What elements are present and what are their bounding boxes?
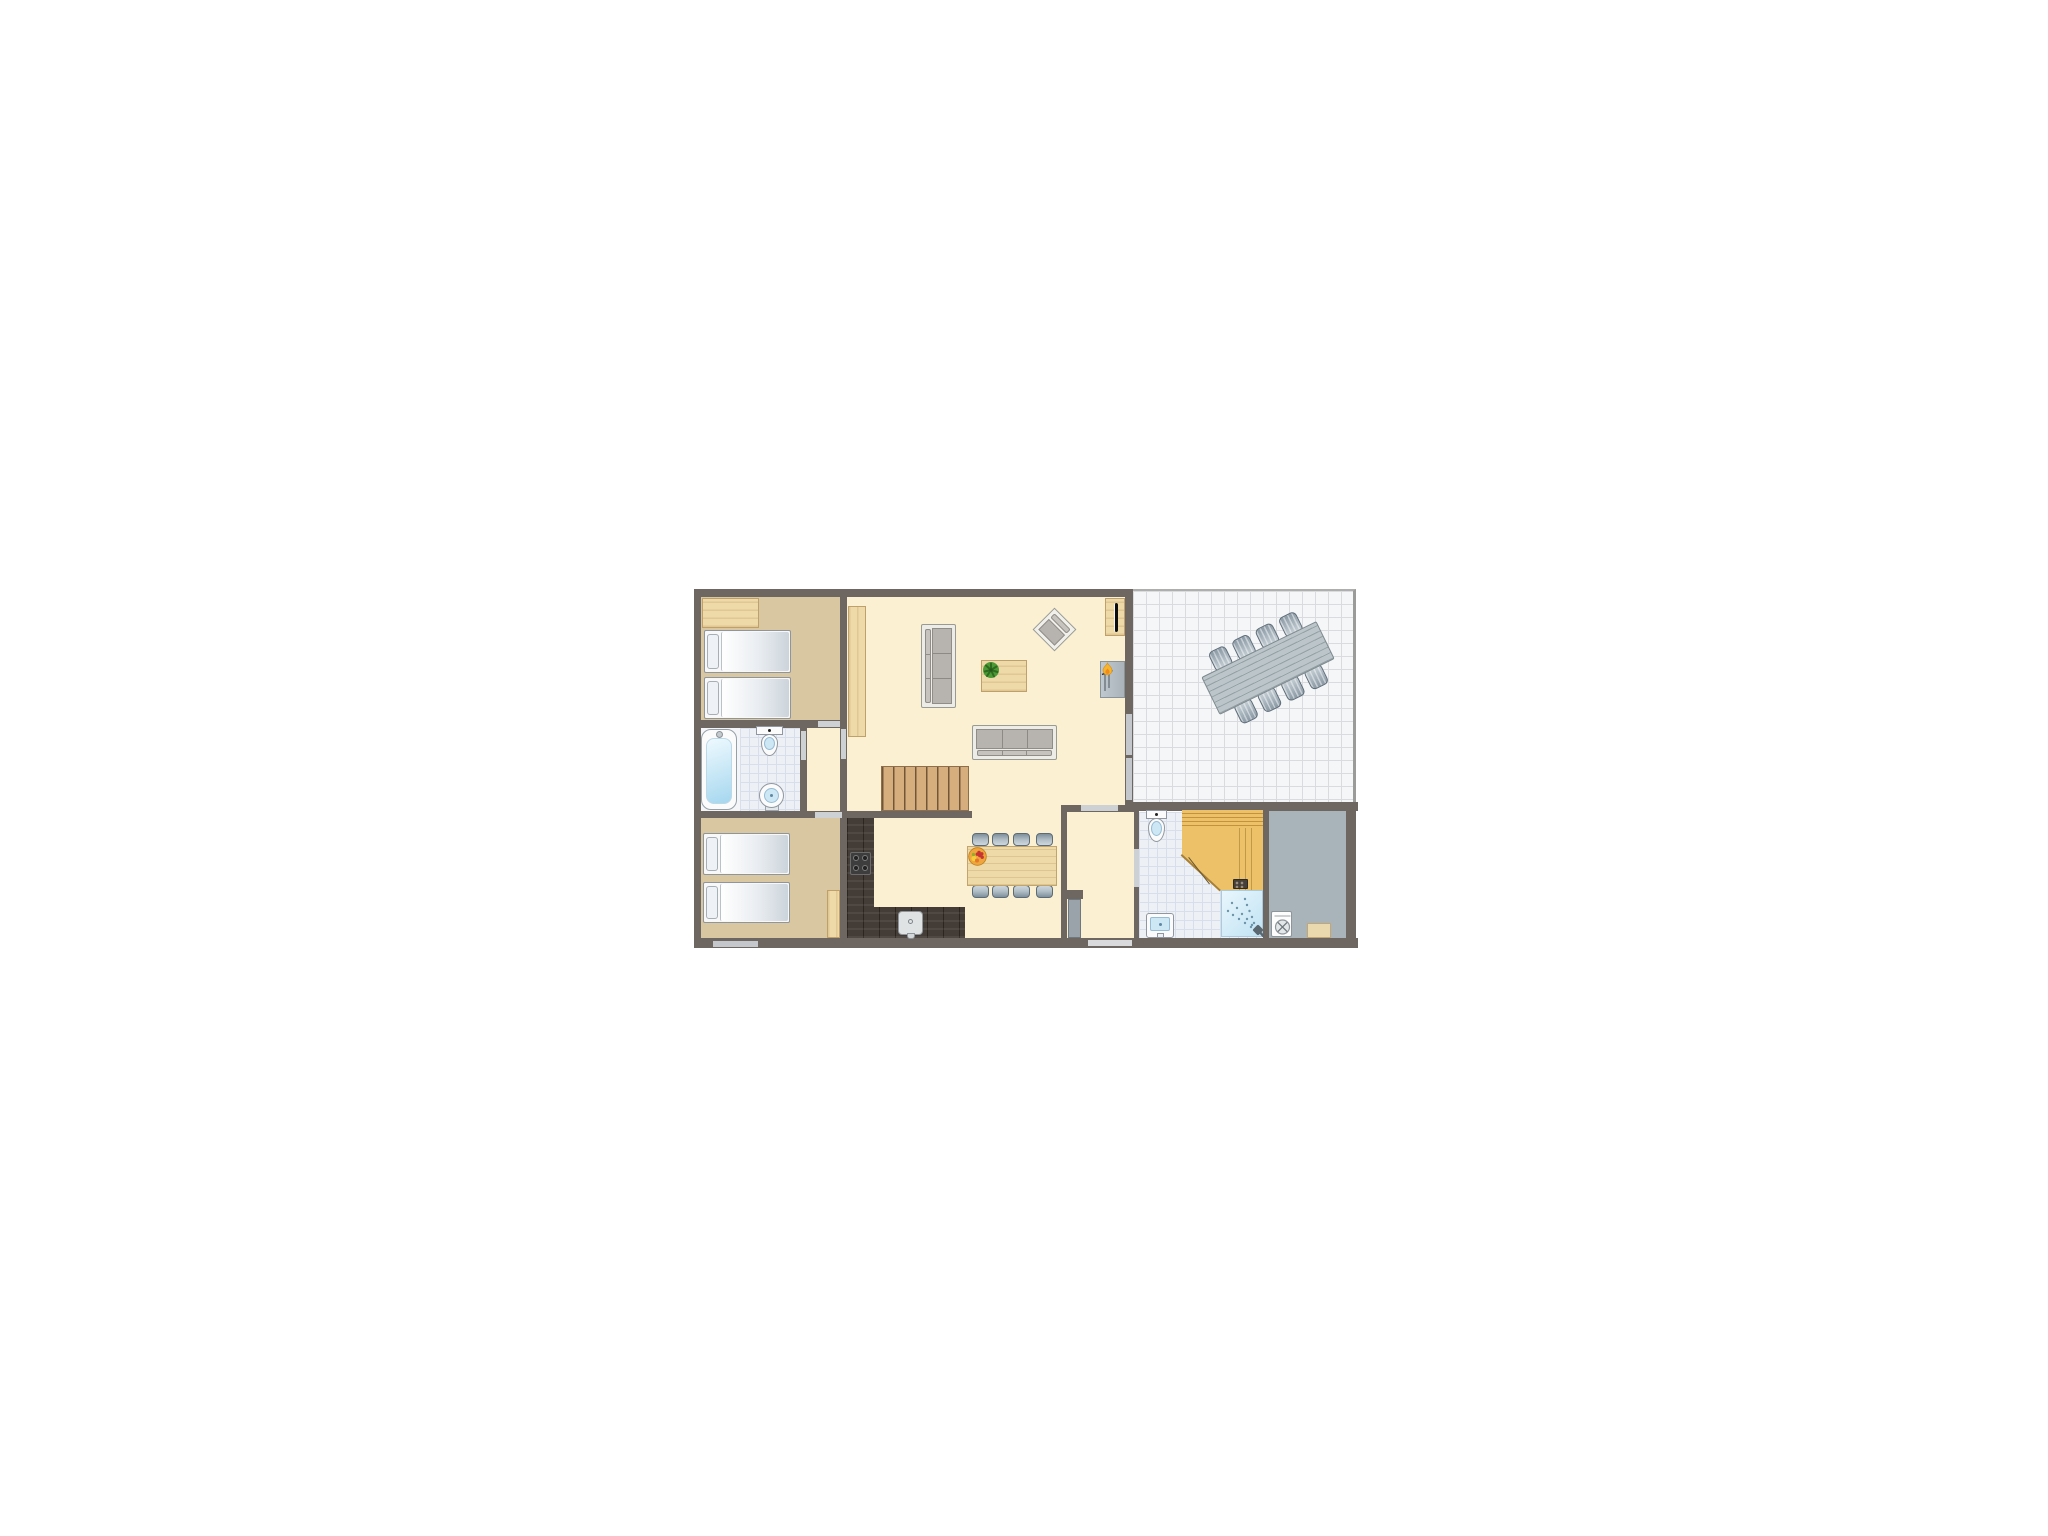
window-living-terrace-1 xyxy=(1126,714,1132,755)
tv-cabinet xyxy=(1105,598,1125,636)
cooktop-burner xyxy=(853,865,859,871)
bed-3 xyxy=(703,833,790,875)
washing-machine-drum-icon xyxy=(1272,912,1293,943)
dining-chair xyxy=(972,833,989,846)
sauna-bench xyxy=(1182,817,1263,818)
floor-plan xyxy=(512,384,1536,1152)
sofa-backrest-divider xyxy=(1026,751,1027,755)
sauna-slat xyxy=(1251,828,1252,890)
wall xyxy=(840,818,847,938)
shower-spray-icon xyxy=(1221,890,1264,942)
washbasin-bowl xyxy=(759,783,784,808)
sofa-cushion-divider xyxy=(933,678,951,679)
bed-duvet xyxy=(720,835,788,873)
wall xyxy=(694,589,701,948)
sofa-backrest-divider xyxy=(1002,751,1003,755)
wall xyxy=(847,811,972,818)
door-bedroom-2 xyxy=(815,812,842,818)
sofa-cushion-divider xyxy=(933,653,951,654)
sofa-backrest xyxy=(977,750,1052,756)
dining-chair xyxy=(992,833,1009,846)
bed-duvet xyxy=(721,632,789,671)
fruit-bowl-icon xyxy=(968,847,987,871)
bed-duvet xyxy=(720,884,788,921)
wall xyxy=(840,589,847,728)
toilet-1 xyxy=(756,726,783,760)
sofa-cushions xyxy=(976,729,1053,749)
toilet-bowl xyxy=(761,734,778,756)
dining-chair xyxy=(972,885,989,898)
sauna-cabin xyxy=(1182,810,1263,890)
interior-door-leaf xyxy=(1068,899,1081,938)
dining-chair xyxy=(1013,885,1030,898)
dining-set xyxy=(960,833,1064,899)
sauna-bench xyxy=(1182,825,1263,826)
washing-machine xyxy=(1271,911,1292,937)
stairs xyxy=(881,766,969,811)
window-living-terrace-2 xyxy=(1126,758,1132,800)
door-bathroom-2 xyxy=(1134,849,1139,887)
dining-table xyxy=(967,846,1057,886)
cooktop-burner xyxy=(862,865,868,871)
dining-chair xyxy=(1036,833,1053,846)
plant-icon xyxy=(982,661,1000,684)
bathtub xyxy=(701,729,737,810)
door-bedroom-1 xyxy=(818,721,840,727)
kitchen-sink xyxy=(898,911,923,935)
dining-chair xyxy=(1013,833,1030,846)
shower xyxy=(1221,890,1263,937)
bed-pillow xyxy=(707,634,719,669)
bed-pillow xyxy=(706,837,718,871)
sofa-backrest-divider xyxy=(926,654,930,655)
toilet-seat xyxy=(1151,821,1162,836)
sauna-bench xyxy=(1182,821,1263,822)
bed-pillow xyxy=(707,681,719,715)
bathtub-water xyxy=(706,738,732,804)
flame-icon xyxy=(1101,662,1114,682)
toilet-bowl xyxy=(1148,818,1165,842)
wall xyxy=(694,589,1133,597)
wardrobe xyxy=(702,598,759,628)
wall xyxy=(1061,890,1083,899)
washbasin-drain xyxy=(1159,923,1162,926)
bed-1 xyxy=(704,630,791,673)
door-hall-living xyxy=(841,729,846,759)
wall xyxy=(1346,805,1356,948)
toilet-button xyxy=(768,729,771,732)
washbasin-water xyxy=(1150,917,1170,931)
sauna-heater xyxy=(1233,879,1248,889)
cooktop xyxy=(850,852,871,875)
entrance-door xyxy=(1088,940,1132,946)
bathtub-faucet-icon xyxy=(716,731,723,738)
sofa-backrest xyxy=(925,629,931,703)
fireplace xyxy=(1100,661,1125,698)
cooktop-burner xyxy=(853,855,859,861)
sink-drain xyxy=(908,919,913,924)
bed-4 xyxy=(703,882,790,923)
sofa-cushions xyxy=(932,628,952,704)
bed-duvet xyxy=(721,679,789,717)
bed-pillow xyxy=(706,886,718,919)
washbasin-1 xyxy=(758,783,786,811)
cooktop-burner xyxy=(862,855,868,861)
bed-2 xyxy=(704,677,791,719)
window-bedroom-2 xyxy=(713,941,758,947)
sofa-1 xyxy=(921,624,956,708)
washbasin-2 xyxy=(1146,913,1174,938)
coffee-table xyxy=(981,660,1027,692)
washbasin-tap xyxy=(1157,933,1164,938)
sofa-cushion-divider xyxy=(1027,730,1028,748)
toilet-button xyxy=(1155,813,1158,816)
sofa-2 xyxy=(972,725,1057,760)
dining-chair xyxy=(992,885,1009,898)
door-bathroom-1 xyxy=(801,731,806,760)
dining-chair xyxy=(1036,885,1053,898)
sauna-bench xyxy=(1182,813,1263,814)
sofa-cushion-divider xyxy=(1002,730,1003,748)
doorway-hallway xyxy=(1081,805,1118,811)
sink-tap xyxy=(907,933,915,939)
sofa-backrest-divider xyxy=(926,678,930,679)
washbasin-drain xyxy=(770,794,773,797)
floor-hall xyxy=(807,728,840,811)
tv xyxy=(1114,603,1118,632)
sauna xyxy=(1182,810,1263,890)
toilet-2 xyxy=(1146,810,1167,846)
closet xyxy=(827,890,840,938)
doormat xyxy=(1307,923,1331,938)
toilet-seat xyxy=(764,737,775,750)
tall-cabinet xyxy=(848,606,866,737)
